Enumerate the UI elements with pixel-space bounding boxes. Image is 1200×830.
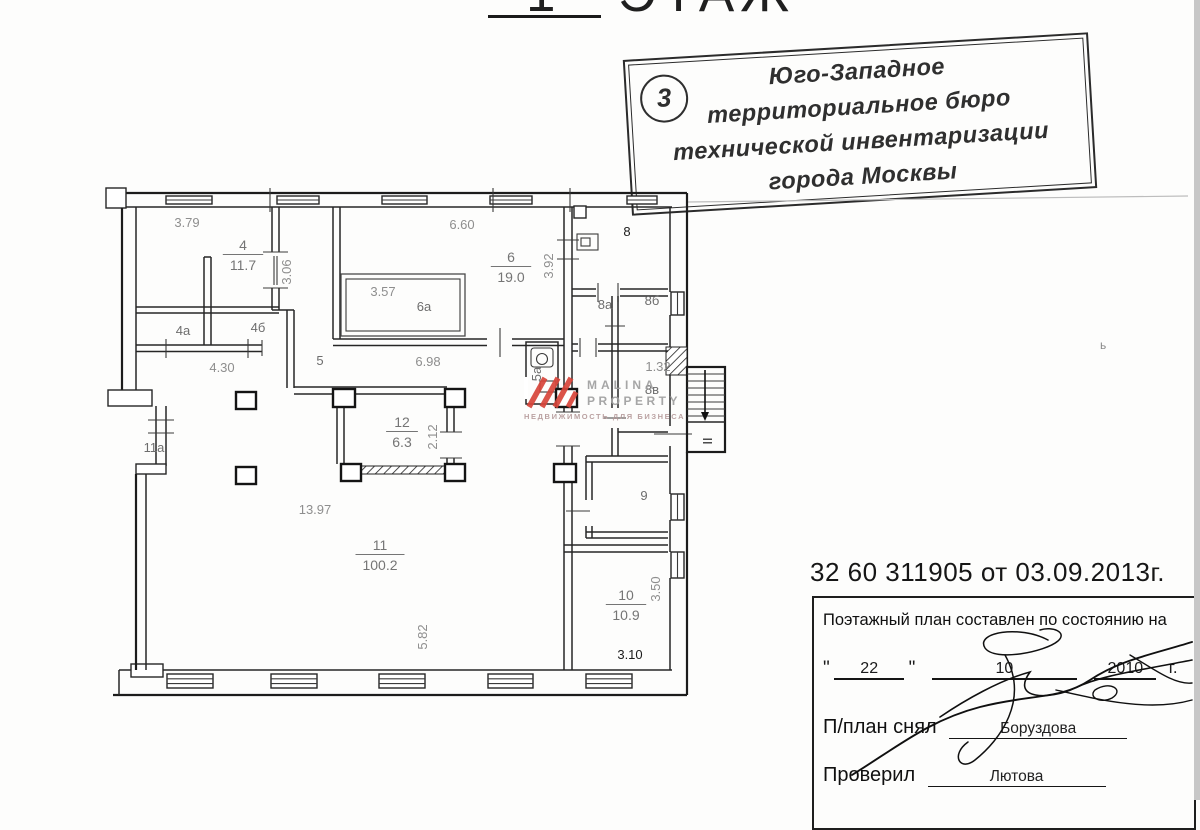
- floor-word: ЭТАЖ: [618, 0, 795, 24]
- window: [166, 196, 212, 204]
- svg-text:19.0: 19.0: [497, 269, 524, 285]
- room-number-area-label: 126.3: [386, 414, 418, 450]
- malina-logo-icon: [524, 374, 582, 410]
- statement-text: Поэтажный план составлен по состоянию на: [823, 611, 1167, 630]
- checker-name: Лютова: [928, 768, 1106, 787]
- hatched-wall-section: [666, 347, 687, 375]
- watermark-brand-line1: MALINA: [587, 378, 658, 392]
- watermark: MALINA PROPERTY НЕДВИЖИМОСТЬ ДЛЯ БИЗНЕСА: [524, 372, 684, 424]
- open-quote: ": [823, 658, 830, 679]
- year-field: 2010: [1094, 660, 1156, 680]
- surveyor-name: Боруздова: [949, 720, 1127, 739]
- window: [671, 292, 684, 315]
- room-number-area-label: 11100.2: [356, 537, 405, 573]
- svg-text:6.3: 6.3: [392, 434, 412, 450]
- plan-label: 6а: [417, 299, 432, 314]
- date-row: " 22 " 10 2010 г.: [823, 658, 1187, 680]
- svg-text:11.7: 11.7: [230, 257, 256, 273]
- plan-label: 3.79: [174, 215, 199, 230]
- watermark-brand-line2: PROPERTY: [587, 394, 681, 408]
- scan-artifact: ь: [1100, 338, 1106, 352]
- year-suffix: г.: [1169, 658, 1178, 677]
- plan-label: 9: [640, 488, 647, 503]
- plan-label: 2.12: [425, 424, 440, 449]
- plan-label: 8а: [598, 297, 613, 312]
- window: [490, 196, 532, 204]
- svg-text:100.2: 100.2: [362, 557, 397, 573]
- window: [277, 196, 319, 204]
- exterior-walls: [106, 188, 687, 695]
- stairwell: [687, 367, 725, 452]
- interior-walls: [136, 188, 692, 670]
- plan-labels: 3.793.064.306.603.923.576.982.1213.975.8…: [144, 215, 715, 662]
- window: [167, 674, 213, 688]
- floor-number: 1: [526, 0, 555, 24]
- checker-label: Проверил: [823, 764, 915, 786]
- surveyor-label: П/план снял: [823, 716, 937, 738]
- plan-label: 3.92: [541, 253, 556, 278]
- checker-row: Проверил Лютова: [823, 764, 1106, 787]
- room-number-area-label: 411.7: [223, 237, 263, 273]
- plan-label: 5.82: [415, 624, 430, 649]
- floor-title-underline: [488, 15, 601, 18]
- bti-stamp: 3 Юго-Западное территориальное бюро техн…: [623, 32, 1097, 215]
- plan-label: 4б: [251, 320, 266, 335]
- svg-text:4: 4: [239, 237, 247, 253]
- left-pilaster: [108, 390, 152, 406]
- window: [382, 196, 427, 204]
- plan-label: 8: [623, 224, 630, 239]
- svg-text:12: 12: [394, 414, 410, 430]
- surveyor-row: П/план снял Боруздова: [823, 716, 1127, 739]
- plan-label: 3.50: [648, 576, 663, 601]
- month-field: 10: [932, 660, 1077, 680]
- svg-text:11: 11: [373, 537, 388, 553]
- svg-text:10.9: 10.9: [612, 607, 639, 623]
- window: [671, 552, 684, 578]
- close-quote: ": [909, 658, 916, 679]
- window: [379, 674, 425, 688]
- day-field: 22: [834, 660, 904, 680]
- scanned-floor-plan-page: { "page": { "floor_title": { "number": "…: [0, 0, 1200, 800]
- room-number-area-label: 619.0: [491, 249, 531, 285]
- window: [671, 494, 684, 520]
- document-number: 32 60 311905 от 03.09.2013г.: [810, 557, 1165, 588]
- scan-edge-strip: [1194, 0, 1200, 800]
- window: [488, 674, 533, 688]
- plan-label: 5: [316, 353, 323, 368]
- plan-label: 6.98: [415, 354, 440, 369]
- svg-text:6: 6: [507, 249, 515, 265]
- plan-label: 6.60: [449, 217, 474, 232]
- plan-label: II: [700, 437, 715, 444]
- window: [586, 674, 632, 688]
- svg-text:10: 10: [618, 587, 634, 603]
- room-number-area-label: 1010.9: [606, 587, 646, 623]
- top-left-notch: [106, 188, 126, 208]
- window-symbols: [166, 196, 684, 688]
- bottom-left-notch: [131, 664, 163, 677]
- plan-label: 4.30: [209, 360, 234, 375]
- bti-stamp-text: Юго-Западное территориальное бюро технич…: [625, 34, 1095, 213]
- plan-label: 3.06: [279, 259, 294, 284]
- plan-label: 11а: [144, 440, 165, 455]
- plan-label: 3.10: [617, 647, 642, 662]
- watermark-tagline: НЕДВИЖИМОСТЬ ДЛЯ БИЗНЕСА: [524, 412, 685, 421]
- window: [271, 674, 317, 688]
- footer-box: Поэтажный план составлен по состоянию на…: [812, 596, 1196, 830]
- plan-label: 3.57: [370, 284, 395, 299]
- plan-label: 4а: [176, 323, 191, 338]
- plan-label: 8б: [645, 293, 660, 308]
- floor-title: 1 ЭТАЖ: [486, 0, 795, 24]
- plan-label: 13.97: [299, 502, 332, 517]
